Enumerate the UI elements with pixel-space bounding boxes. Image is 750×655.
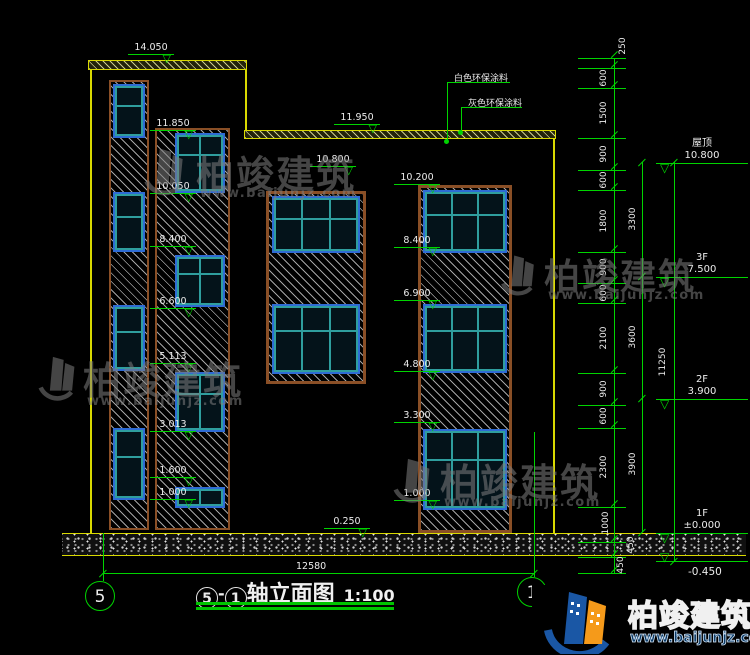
level-mark: 4.800▽: [394, 360, 440, 372]
dim-segment: 1500: [599, 102, 609, 125]
floor-mark-2f: 2F3.900▽: [656, 374, 748, 400]
window-pane: [331, 200, 356, 218]
level-value: 0.250: [333, 516, 360, 527]
title-separator: -: [218, 584, 225, 603]
level-mark: 8.400▽: [150, 235, 196, 247]
window-pane: [427, 194, 451, 214]
floor-elev-basement: -0.450: [688, 566, 722, 578]
title-grid-start: 5: [196, 587, 218, 609]
floor-name: 2F: [696, 374, 708, 385]
level-mark: 11.850▽: [150, 119, 196, 131]
level-value: 8.400: [159, 234, 186, 245]
level-mark: 10.200▽: [394, 173, 440, 185]
floor-name: 1F: [696, 508, 708, 519]
level-line: [656, 533, 748, 534]
floor-mark-roof: 屋顶10.800▽: [656, 138, 748, 164]
window: [113, 428, 145, 500]
floor-elev: 3.900: [688, 386, 717, 397]
watermark-site: www.baijunjz.com: [444, 495, 601, 510]
dim-segment: 900: [599, 145, 609, 162]
level-mark: 6.600▽: [150, 297, 196, 309]
window-pane: [117, 458, 141, 496]
window-pane: [117, 88, 141, 105]
level-triangle-icon: ▽: [163, 53, 171, 64]
window-pane: [331, 308, 356, 330]
level-value: 6.600: [159, 296, 186, 307]
watermark-logo-icon: [33, 348, 79, 404]
level-mark: 3.300▽: [394, 411, 440, 423]
title-grid-end: 1: [225, 587, 247, 609]
dimension-line-overall: [674, 162, 675, 561]
leader-line: [461, 107, 522, 108]
watermark-logo-icon: [496, 248, 538, 298]
level-line: [656, 163, 748, 164]
extension-line: [578, 542, 626, 543]
extension-line: [578, 373, 626, 374]
leader-dot: [458, 130, 463, 135]
watermark: 柏竣建筑 www.baijunjz.com: [388, 450, 434, 510]
window-pane: [453, 308, 477, 330]
title-underline: [196, 607, 394, 610]
level-triangle-icon: ▽: [185, 498, 193, 509]
level-mark-roof-left: 14.050▽: [128, 43, 174, 55]
window-pane: [331, 332, 356, 370]
level-mark-plinth: 0.250▽: [324, 517, 370, 529]
wall-edge-left: [90, 70, 92, 533]
window-pane: [303, 220, 328, 249]
window: [272, 304, 360, 374]
level-value: 3.300: [403, 410, 430, 421]
floor-elev: ±0.000: [683, 520, 720, 531]
level-triangle-icon: ▽: [429, 370, 437, 381]
level-value: 6.900: [403, 288, 430, 299]
extension-line: [578, 303, 626, 304]
level-value: 3.013: [159, 419, 186, 430]
level-value: 1.000: [159, 487, 186, 498]
level-line: [656, 399, 748, 400]
dim-segment: 900: [599, 380, 609, 397]
leader-line: [447, 82, 448, 140]
extension-line: [578, 88, 626, 89]
window: [113, 192, 145, 252]
window-pane: [201, 275, 221, 303]
watermark-site: www.baijunjz.com: [200, 186, 357, 201]
brand-logo-site: www.baijunjz.com: [630, 630, 750, 646]
dim-segment: 450: [626, 536, 636, 553]
level-triangle-icon: ▽: [185, 476, 193, 487]
leader-dot: [444, 139, 449, 144]
dim-segment: 1000: [601, 512, 611, 535]
extension-line: [578, 405, 626, 406]
level-triangle-icon: ▽: [429, 421, 437, 432]
extension-line: [578, 428, 626, 429]
dim-segment: 600: [599, 407, 609, 424]
window-pane: [331, 220, 356, 249]
window-pane: [303, 308, 328, 330]
dim-segment: 250: [618, 37, 628, 54]
level-mark: 3.013▽: [150, 420, 196, 432]
dim-segment: 450: [616, 556, 626, 573]
level-triangle-icon: ▽: [660, 162, 669, 174]
watermark: 柏竣建筑 www.baijunjz.com: [496, 248, 538, 302]
level-triangle-icon: ▽: [185, 307, 193, 318]
grid-bubble-label: 5: [95, 587, 106, 607]
level-mark-roof-right: 11.950▽: [334, 113, 380, 125]
window-pane: [201, 259, 221, 273]
window: [272, 196, 360, 253]
level-triangle-icon: ▽: [185, 430, 193, 441]
level-mark: 6.900▽: [394, 289, 440, 301]
window: [113, 84, 145, 138]
dim-floor-span: 3900: [628, 453, 638, 476]
dim-segment: 600: [599, 69, 609, 86]
window-pane: [179, 259, 199, 273]
extension-line: [578, 190, 626, 191]
window-pane: [479, 194, 503, 214]
watermark: 柏竣建筑 www.baijunjz.com: [138, 142, 188, 200]
dim-floor-span: 3300: [628, 208, 638, 231]
window-pane: [427, 308, 451, 330]
window-pane: [117, 218, 141, 248]
dim-floor-span: 3600: [628, 326, 638, 349]
dim-segment: 2300: [599, 456, 609, 479]
watermark-site: www.baijunjz.com: [548, 288, 705, 303]
level-triangle-icon: ▽: [185, 129, 193, 140]
window-pane: [117, 309, 141, 331]
level-triangle-icon: ▽: [660, 398, 669, 410]
dim-segment: 2100: [599, 327, 609, 350]
floor-elev: 10.800: [685, 150, 720, 161]
dim-overall: 11250: [658, 348, 668, 377]
level-triangle-icon: ▽: [429, 183, 437, 194]
grid-bubble-5: 5: [85, 581, 115, 611]
leader-line: [447, 82, 510, 83]
brand-logo: 柏竣建筑 www.baijunjz.com: [532, 585, 750, 655]
window-pane: [276, 332, 301, 370]
dimension-line-floors: [642, 162, 643, 532]
window-pane: [117, 432, 141, 456]
window-pane: [453, 332, 477, 369]
wall-edge-step: [245, 70, 247, 130]
elevation-drawing-canvas: 14.050▽ 11.950▽ 10.800▽ 0.250▽ 11.850▽ 1…: [0, 0, 750, 655]
title-underline: [196, 602, 394, 605]
brand-logo-icon: [534, 586, 626, 654]
dim-segment: 600: [599, 171, 609, 188]
level-triangle-icon: ▽: [369, 123, 377, 134]
watermark-site: www.baijunjz.com: [87, 394, 244, 409]
level-line: [656, 561, 748, 562]
window-pane: [453, 194, 477, 214]
watermark: 柏竣建筑 www.baijunjz.com: [33, 348, 79, 408]
level-triangle-icon: ▽: [359, 527, 367, 538]
window-pane: [303, 200, 328, 218]
level-mark: 8.400▽: [394, 236, 440, 248]
brand-logo-text: 柏竣建筑: [628, 591, 750, 635]
level-value: 8.400: [403, 235, 430, 246]
window-pane: [276, 200, 301, 218]
bottom-dimension-line: [103, 573, 534, 574]
extension-line: [578, 138, 626, 139]
watermark-logo-icon: [388, 450, 434, 506]
level-triangle-icon: ▽: [429, 246, 437, 257]
level-value: 1.600: [159, 465, 186, 476]
floor-mark-1f: 1F±0.000▽: [656, 508, 748, 534]
window-pane: [117, 107, 141, 134]
roof-band-lower: [244, 130, 556, 139]
level-triangle-icon: ▽: [185, 245, 193, 256]
level-triangle-icon: ▽: [660, 532, 669, 544]
floor-name: 屋顶: [692, 138, 712, 149]
extension-line: [578, 58, 626, 59]
bottom-dimension-value: 12580: [296, 561, 326, 572]
window-pane: [479, 216, 503, 249]
watermark-logo-icon: [138, 142, 188, 196]
level-mark: 1.000▽: [150, 488, 196, 500]
window-pane: [303, 332, 328, 370]
level-value: 4.800: [403, 359, 430, 370]
ground-band: [62, 533, 746, 556]
window-pane: [276, 308, 301, 330]
window-pane: [479, 308, 503, 330]
level-triangle-icon: ▽: [660, 550, 669, 564]
window-pane: [201, 491, 221, 504]
window-pane: [276, 220, 301, 249]
level-mark: 1.600▽: [150, 466, 196, 478]
dim-segment: 1800: [599, 210, 609, 233]
window-pane: [479, 332, 503, 369]
leader-line: [461, 107, 462, 132]
level-triangle-icon: ▽: [429, 299, 437, 310]
window-pane: [453, 216, 477, 249]
floor-name: 3F: [696, 252, 708, 263]
